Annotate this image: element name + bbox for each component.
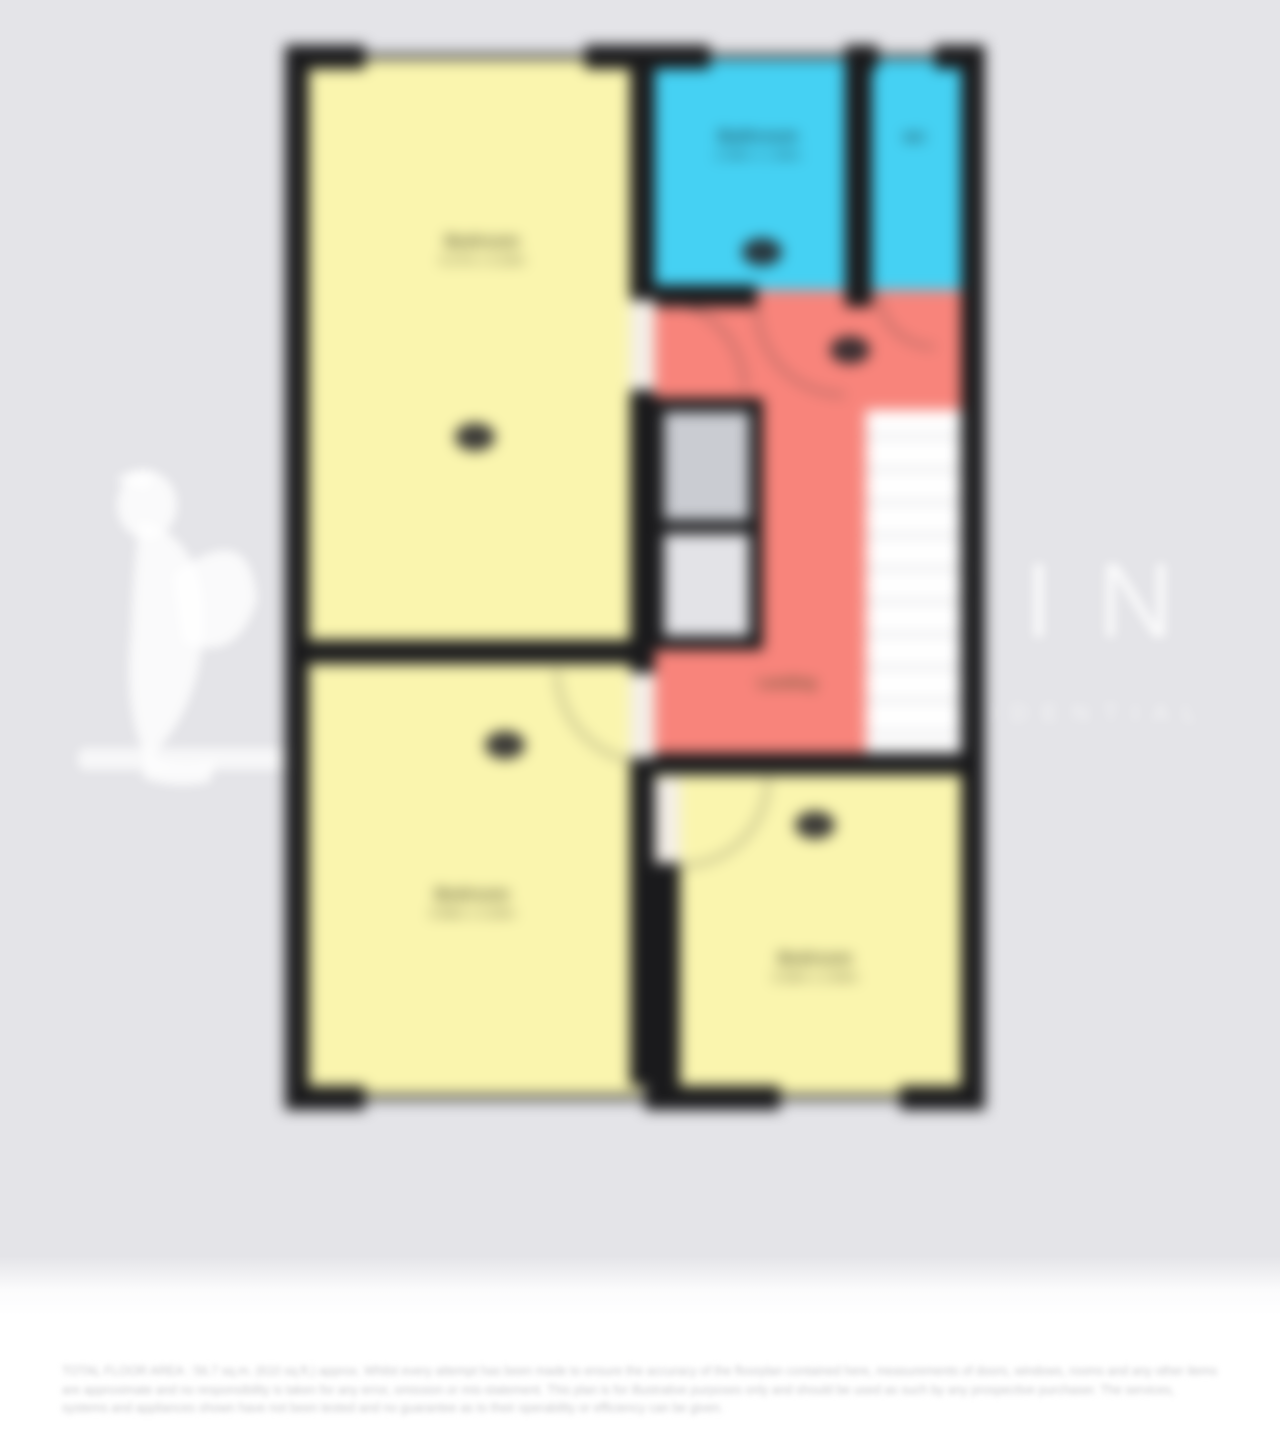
room-dims: 3.30m x 2.84m [772,970,858,987]
disclaimer-area-line: TOTAL FLOOR AREA : 56.7 sq.m. (610 sq.ft… [62,1364,361,1378]
room-name: WC [903,129,926,145]
floorplan: Bedroom 4.27m x 3.23m Bathroom 2.08m x 1… [285,45,985,1110]
light-icon [742,238,782,266]
room-name: Bathroom [718,127,798,146]
light-icon [795,811,835,839]
label-bathroom: Bathroom 2.08m x 1.96m [715,126,801,165]
label-wc: WC [903,128,926,146]
room-name: Bedroom [445,232,520,251]
room-dims: 2.08m x 1.96m [715,148,801,165]
label-bedroom-main: Bedroom 4.27m x 3.23m [439,231,525,270]
room-dims: 4.27m x 3.23m [439,253,525,270]
room-name: Landing [758,674,816,691]
room-name: Bedroom [778,949,853,968]
door-arcs [285,45,985,1110]
room-dims: 3.96m x 3.20m [429,906,515,923]
disclaimer-text: TOTAL FLOOR AREA : 56.7 sq.m. (610 sq.ft… [62,1362,1220,1418]
light-icon [485,731,525,759]
label-bedroom-three: Bedroom 3.30m x 2.84m [772,948,858,987]
light-icon [830,336,870,364]
room-name: Bedroom [435,885,510,904]
light-icon [455,423,495,451]
label-landing: Landing [758,673,816,693]
griffin-logo-icon [85,460,275,790]
label-bedroom-two: Bedroom 3.96m x 3.20m [429,884,515,923]
